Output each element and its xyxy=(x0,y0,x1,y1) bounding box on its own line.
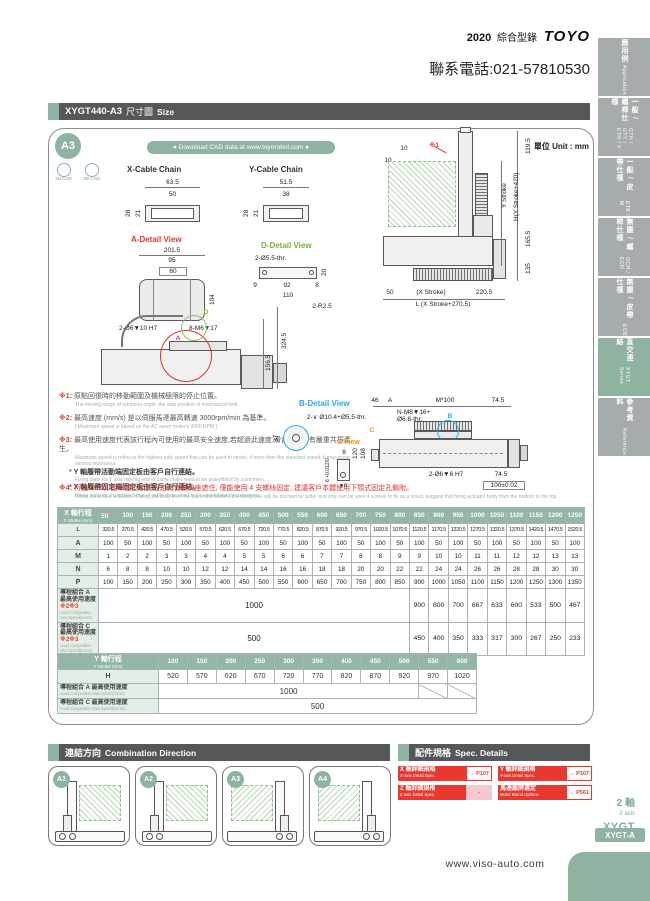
table-cell: 900 xyxy=(410,576,429,589)
table-cell: 670.5 xyxy=(235,524,254,537)
motor-dot xyxy=(59,833,66,840)
table-cell: 50 xyxy=(390,537,409,550)
front-x-belt xyxy=(413,268,493,281)
dim-x-46: 46 xyxy=(367,397,383,404)
table-cell: 820 xyxy=(332,670,361,684)
speed-cell: 233 xyxy=(565,622,585,656)
d-detail-title: D-Detail View xyxy=(261,241,312,250)
table-cell: 920.5 xyxy=(332,524,351,537)
note-3-no: ※3: xyxy=(59,437,72,444)
y-stroke-header: 200 xyxy=(216,654,245,670)
table-cell: 2 xyxy=(137,550,156,563)
dim-d-92: 92 xyxy=(265,282,309,289)
sidebar-tab-application[interactable]: 應用例Application xyxy=(598,38,650,96)
b-detail-hole xyxy=(292,434,300,442)
speed-cell: 900 xyxy=(410,589,429,623)
table-cell: 1220.5 xyxy=(448,524,467,537)
table-cell: 770 xyxy=(303,670,332,684)
motor-dot xyxy=(276,833,283,840)
table-cell: 820.5 xyxy=(293,524,312,537)
dim-d-8: 8 xyxy=(311,282,323,289)
table-cell: 30 xyxy=(565,563,585,576)
speed-row-label: 導程組合 A 最高使用速度Lead Composition Max.Speed(… xyxy=(58,684,159,699)
table-cell: 100 xyxy=(99,576,118,589)
catalog-edition: 2020 綜合型錄 TOYO xyxy=(330,28,590,45)
b-marker-label: B xyxy=(445,413,455,420)
spec-title-bar: 配件規格 Spec. Details xyxy=(398,744,590,761)
tab-label-zh: 一般 / 螺桿仕樣 xyxy=(609,98,639,126)
table-cell: 1320.5 xyxy=(487,524,506,537)
d-detail-hole-right xyxy=(309,270,314,275)
title-en: Size xyxy=(157,107,174,117)
x-stroke-header: 1250 xyxy=(565,508,585,524)
y-cable-chain-title: Y-Cable Chain xyxy=(249,165,303,174)
table-cell: 1200 xyxy=(507,576,526,589)
b-detail-title: B-Detail View xyxy=(299,399,350,408)
dim-front-165: 165.5 xyxy=(525,223,532,255)
table-cell: 520.5 xyxy=(176,524,195,537)
note-4-en: When the stroke is 50mm, if fixing the b… xyxy=(75,494,584,500)
table-cell: 26 xyxy=(468,563,487,576)
table-cell: 800 xyxy=(371,576,390,589)
x-stroke-header: 200 xyxy=(157,508,176,524)
tab-label-en: Application xyxy=(621,65,627,95)
table-cell: 470.5 xyxy=(157,524,176,537)
title-zh: 尺寸圖 xyxy=(126,105,153,118)
table-cell: 8 xyxy=(371,550,390,563)
dim-line xyxy=(277,307,278,389)
table-cell: 50 xyxy=(351,537,370,550)
d-detail-marker-circle xyxy=(181,315,207,341)
table-cell: 12 xyxy=(526,550,545,563)
table-cell: 620.5 xyxy=(215,524,234,537)
y-stroke-header: 400 xyxy=(332,654,361,670)
table-cell: 10 xyxy=(176,563,195,576)
combination-box-a2: A2 xyxy=(135,766,217,846)
catalog-year: 2020 xyxy=(467,32,491,44)
axes-zh: 2 軸 xyxy=(617,798,635,809)
x-stroke-header: 100 xyxy=(118,508,137,524)
note-1-no: ※1: xyxy=(59,393,72,400)
table-cell: 350 xyxy=(196,576,215,589)
table-cell: 50 xyxy=(429,537,448,550)
x-stroke-header: 550 xyxy=(293,508,312,524)
d-marker-label: D xyxy=(201,309,211,316)
speed-cell: 667 xyxy=(468,589,487,623)
dim-front-10a: 10 xyxy=(397,145,411,152)
combination-box-a4: A4 xyxy=(309,766,391,846)
cad-3d-icon[interactable] xyxy=(85,163,99,177)
x-chain-section-inner xyxy=(151,208,194,219)
table-cell: 9 xyxy=(410,550,429,563)
side-motor xyxy=(273,363,287,383)
table-cell: 50 xyxy=(312,537,331,550)
spec-item-1[interactable]: X 軸詳細規格X-axis Detail Spec.→ P107 xyxy=(398,766,492,781)
table-cell: 100 xyxy=(371,537,390,550)
combination-title-en: Combination Direction xyxy=(105,748,196,758)
dim-d-110: 110 xyxy=(261,292,315,299)
dim-ychain-inner-h: 21 xyxy=(253,205,260,222)
dim-front-xstroke: (X Stroke) xyxy=(401,289,461,296)
download-cad-link[interactable]: ● Download CAD data at www.toyorobot.com… xyxy=(147,141,335,154)
table-cell: 50 xyxy=(273,537,292,550)
x-stroke-header: 350 xyxy=(215,508,234,524)
dim-a-w2: 95 xyxy=(151,257,193,264)
table-cell: 10 xyxy=(429,550,448,563)
axes-en: 2 axis xyxy=(540,811,635,818)
table-cell: 8 xyxy=(351,550,370,563)
table-cell: 100 xyxy=(293,537,312,550)
x-stroke-header: 1200 xyxy=(546,508,565,524)
motor-dot xyxy=(373,833,380,840)
table-cell: 870 xyxy=(361,670,390,684)
table-cell: 100 xyxy=(565,537,585,550)
spec-title-en: Spec. Details xyxy=(455,748,508,758)
spec-item-page-ref[interactable]: → P107 xyxy=(466,766,492,781)
dim-x-nm8a: N-M8▼16+ xyxy=(397,409,439,416)
x-rail-centerline xyxy=(383,453,503,454)
table-cell: 520 xyxy=(159,670,188,684)
table-cell: 4 xyxy=(196,550,215,563)
page-corner-block xyxy=(568,852,650,901)
tab-label-zh: 一般 / 皮帶仕樣 xyxy=(614,158,634,199)
footer-url[interactable]: www.viso-auto.com xyxy=(420,858,570,870)
dim-x-a: A xyxy=(385,397,395,404)
speed-span-cell: 1000 xyxy=(159,684,419,699)
table-cell: 570 xyxy=(187,670,216,684)
table-cell: 5 xyxy=(235,550,254,563)
table-cell: 8 xyxy=(137,563,156,576)
dim-ychain-outer-h: 28 xyxy=(243,203,250,223)
table-cell: 3 xyxy=(176,550,195,563)
table-cell: 16 xyxy=(273,563,292,576)
table-cell: 13 xyxy=(565,550,585,563)
table-cell: 26 xyxy=(487,563,506,576)
dim-x-m100: M*100 xyxy=(427,397,463,404)
x-stroke-header: 250 xyxy=(176,508,195,524)
sidebar-nav: 應用例Application一般 / 螺桿仕樣GTH / GTY / ETH /… xyxy=(598,38,650,458)
dim-xchain-outer-w: 63.5 xyxy=(145,179,200,186)
x-rail-lefttab xyxy=(371,449,379,461)
na-cell xyxy=(419,684,448,699)
spec-item-2[interactable]: Y 軸詳細規格Y-axis Detail Spec.→ P107 xyxy=(498,766,592,781)
dim-front-50: 50 xyxy=(382,289,398,296)
speed-cell: 350 xyxy=(448,622,467,656)
front-motion-range-hatch xyxy=(388,161,456,227)
speed-cell: 633 xyxy=(487,589,506,623)
table-cell: 6 xyxy=(273,550,292,563)
table-cell: 100 xyxy=(487,537,506,550)
dim-xchain-inner-h: 21 xyxy=(135,205,142,222)
table-cell: 1420.5 xyxy=(526,524,545,537)
table-cell: 920 xyxy=(390,670,419,684)
combination-badge: A3 xyxy=(227,771,244,788)
dim-line xyxy=(383,299,505,300)
na-cell xyxy=(448,684,477,699)
sidebar-tab-gch-ech[interactable]: 無塵 / 螺桿仕樣GCH / ECH xyxy=(598,218,650,276)
x-cable-chain-title: X-Cable Chain xyxy=(127,165,181,174)
y-stroke-header: 600 xyxy=(448,654,477,670)
dim-front-135: 135 xyxy=(525,257,532,281)
speed-cell: 317 xyxy=(487,622,506,656)
speed-row-label: 導程組合 A最高使用速度 ※2※3Lead Composition Max.Sp… xyxy=(58,589,99,623)
table-cell: 50 xyxy=(157,537,176,550)
a-detail-title: A-Detail View xyxy=(131,235,182,244)
dim-ychain-inner-w: 38 xyxy=(269,191,303,198)
table-cell: 2 xyxy=(118,550,137,563)
x-table-header-label: X 軸行程X Stroke (mm) xyxy=(58,508,99,524)
x-stroke-header: 650 xyxy=(332,508,351,524)
d-detail-hole-left xyxy=(262,270,267,275)
table-cell: 50 xyxy=(235,537,254,550)
dim-d-20: 20 xyxy=(321,263,328,281)
combination-title-zh: 連結方向 xyxy=(65,746,101,759)
dim-xchain-outer-h: 28 xyxy=(125,203,132,223)
y-stroke-header: 250 xyxy=(245,654,274,670)
table-cell: 1 xyxy=(99,550,118,563)
table-cell: 100 xyxy=(526,537,545,550)
table-cell: 6 xyxy=(99,563,118,576)
combination-box-a1: A1 xyxy=(48,766,130,846)
note-4-zh: 行程 50 時, 因本體上顎式固定孔會被滑座遮住, 僅能使用 4 支螺絲固定, … xyxy=(74,485,413,492)
table-cell: 50 xyxy=(507,537,526,550)
table-cell: 50 xyxy=(118,537,137,550)
dim-d-r: 2-R2.5 xyxy=(307,303,337,310)
table-cell: 14 xyxy=(254,563,273,576)
table-cell: 10 xyxy=(157,563,176,576)
y-stroke-header: 450 xyxy=(361,654,390,670)
table-cell: 5 xyxy=(254,550,273,563)
cad-2d-icon[interactable] xyxy=(57,163,71,177)
dim-a-w1: 201.5 xyxy=(139,247,205,254)
x-stroke-header: 400 xyxy=(235,508,254,524)
table-cell: 970 xyxy=(419,670,448,684)
model-name: XYGT440-A3 xyxy=(65,106,122,117)
catalog-page: 2020 綜合型錄 TOYO 聯系電話:021-57810530 XYGT440… xyxy=(0,0,650,901)
table-cell: 100 xyxy=(332,537,351,550)
x-rail-endcap xyxy=(508,439,520,468)
table-cell: 1300 xyxy=(546,576,565,589)
dim-d-9: 9 xyxy=(249,282,261,289)
dim-a-w3: 60 xyxy=(159,267,187,276)
motor-dot xyxy=(156,833,163,840)
sidebar-tab-gth-gty-eth-y[interactable]: 一般 / 螺桿仕樣GTH / GTY / ETH / Y xyxy=(598,98,650,156)
table-cell: 650 xyxy=(312,576,331,589)
table-cell: 1020 xyxy=(448,670,477,684)
table-cell: 1250 xyxy=(526,576,545,589)
dimension-panel: A3 2D CAD 3D CAD ● Download CAD data at … xyxy=(48,128,594,725)
table-cell: 550 xyxy=(273,576,292,589)
tab-label-en: GCH / ECH xyxy=(618,257,630,276)
tab-label-zh: 參考資料 xyxy=(614,398,634,426)
table-cell: 450 xyxy=(235,576,254,589)
x-stroke-header: 300 xyxy=(196,508,215,524)
table-cell: 28 xyxy=(526,563,545,576)
row-label: P xyxy=(58,576,99,589)
table-cell: 1070.5 xyxy=(390,524,409,537)
table-cell: 200 xyxy=(137,576,156,589)
table-cell: 620 xyxy=(216,670,245,684)
y-chain-section-inner xyxy=(269,208,303,219)
speed-cell: 250 xyxy=(546,622,565,656)
table-cell: 18 xyxy=(312,563,331,576)
catalog-name: 綜合型錄 xyxy=(497,33,537,44)
x-stroke-header: 50※4 xyxy=(99,508,118,524)
spec-item-label: Y 軸詳細規格Y-axis Detail Spec. xyxy=(498,766,566,781)
table-cell: 100 xyxy=(448,537,467,550)
x-stroke-header: 150 xyxy=(137,508,156,524)
motor-dot xyxy=(69,833,76,840)
note-3-sub1-en: Fixing plate for Y axis moving end of ca… xyxy=(75,477,359,483)
note-2-zh: 最高速度 (mm/s) 是以伺服馬達最高轉速 3000rpm/min 為基準。 xyxy=(74,415,270,422)
speed-row-label: 導程組合 C 最高使用速度Lead Composition Max.Speed(… xyxy=(58,699,159,714)
table-cell: 370.5 xyxy=(118,524,137,537)
table-cell: 100 xyxy=(215,537,234,550)
table-cell: 1520.5 xyxy=(565,524,585,537)
table-cell: 12 xyxy=(507,550,526,563)
speed-span-cell: 1000 xyxy=(99,589,410,623)
y-table-header-label: Y 軸行程Y Stroke (mm) xyxy=(58,654,159,670)
x-stroke-header: 750 xyxy=(371,508,390,524)
motor-dot xyxy=(286,833,293,840)
dim-b-hole: 2-∨ Ø10.4+Ø5.5-thr. xyxy=(307,413,397,421)
speed-span-cell: 500 xyxy=(159,699,477,714)
spec-item-page-ref[interactable]: → P107 xyxy=(566,766,592,781)
spec-item-label: Z 軸詳細規格Z-axis Detail Spec. xyxy=(398,785,466,800)
motion-range-hatch xyxy=(318,785,360,821)
dim-c-tol: 6 +0.012/0 xyxy=(325,455,331,485)
table-cell: 20 xyxy=(371,563,390,576)
sidebar-tab-xygt-series[interactable]: 直交連結XYGT Series xyxy=(598,338,650,396)
combination-badge: A2 xyxy=(140,771,157,788)
front-y-top-cap xyxy=(460,127,471,133)
x-stroke-header: 1000 xyxy=(468,508,487,524)
dim-front-119: 119.5 xyxy=(525,131,532,161)
tab-label-zh: 無塵 / 螺桿仕樣 xyxy=(614,218,634,255)
brand-logo: TOYO xyxy=(544,28,590,45)
asterisk: * xyxy=(69,469,72,476)
sidebar-tab-ecb[interactable]: 無塵 / 皮帶仕樣ECB xyxy=(598,278,650,336)
motor-dot xyxy=(146,833,153,840)
table-cell: 400 xyxy=(215,576,234,589)
speed-cell: 333 xyxy=(468,622,487,656)
spec-item-3[interactable]: Z 軸詳細規格Z-axis Detail Spec.- xyxy=(398,785,492,800)
dim-ychain-outer-w: 51.5 xyxy=(263,179,309,186)
speed-cell: 467 xyxy=(565,589,585,623)
table-cell: 600 xyxy=(293,576,312,589)
speed-cell: 600 xyxy=(507,589,526,623)
note-4-no: ※4: xyxy=(59,485,72,492)
cad-3d-label: 3D CAD xyxy=(79,176,104,181)
table-cell: 13 xyxy=(546,550,565,563)
speed-cell: 400 xyxy=(429,622,448,656)
contact-phone: 聯系電話:021-57810530 xyxy=(280,58,590,79)
table-cell: 420.5 xyxy=(137,524,156,537)
y-stroke-header: 500 xyxy=(390,654,419,670)
motion-range-hatch xyxy=(166,785,208,821)
sidebar-tab-reference[interactable]: 參考資料Reference xyxy=(598,398,650,456)
tab-label-en: XYGT Series xyxy=(618,367,630,396)
x-stroke-header: 850 xyxy=(410,508,429,524)
table-cell: 1120.5 xyxy=(410,524,429,537)
title-accent-square xyxy=(398,744,409,761)
table-cell: 320.5 xyxy=(99,524,118,537)
speed-span-cell: 500 xyxy=(99,622,410,656)
dim-front-l: L (X Stroke+270.5) xyxy=(393,301,493,308)
x-stroke-header: 700 xyxy=(351,508,370,524)
table-cell: 500 xyxy=(254,576,273,589)
a-marker-label: A xyxy=(173,335,183,342)
table-cell: 250 xyxy=(157,576,176,589)
series-tab[interactable]: XYGT-A xyxy=(595,828,645,842)
sidebar-tab-etb-m[interactable]: 一般 / 皮帶仕樣ETB / M xyxy=(598,158,650,216)
table-cell: 100 xyxy=(137,537,156,550)
table-cell: 16 xyxy=(293,563,312,576)
x-stroke-header: 950 xyxy=(448,508,467,524)
dim-c-depth: ▼6 xyxy=(333,483,353,489)
dim-line xyxy=(263,319,264,389)
table-cell: 24 xyxy=(429,563,448,576)
table-cell: 50 xyxy=(468,537,487,550)
dim-x-120: 120 xyxy=(352,439,359,469)
note-2-no: ※2: xyxy=(59,415,72,422)
tab-label-en: ETB / M xyxy=(618,201,630,216)
front-x-rail xyxy=(383,236,493,266)
dim-front-h: H(Y Stroke+420) xyxy=(513,155,520,239)
dim-c-8: 8 xyxy=(337,449,351,456)
table-cell: 850 xyxy=(390,576,409,589)
row-label: M xyxy=(58,550,99,563)
dim-x-100: 100±0.02 xyxy=(483,481,525,490)
table-cell: 1170.5 xyxy=(429,524,448,537)
table-cell: 12 xyxy=(196,563,215,576)
table-cell: 50 xyxy=(546,537,565,550)
motion-range-hatch xyxy=(231,785,273,821)
spec-item-page-ref[interactable]: - xyxy=(466,785,492,800)
front-x-endcap xyxy=(493,239,506,279)
speed-cell: 300 xyxy=(507,622,526,656)
combination-box-a3: A3 xyxy=(222,766,304,846)
table-cell: 720.5 xyxy=(254,524,273,537)
table-cell: 14 xyxy=(235,563,254,576)
x-stroke-header: 800 xyxy=(390,508,409,524)
row-label: N xyxy=(58,563,99,576)
table-cell: 570.5 xyxy=(196,524,215,537)
x-stroke-header: 1150 xyxy=(526,508,545,524)
table-cell: 1000 xyxy=(429,576,448,589)
speed-cell: 500 xyxy=(546,589,565,623)
unit-label: 單位 Unit : mm xyxy=(511,141,589,152)
motor-dot xyxy=(363,833,370,840)
speed-row-label: 導程組合 C最高使用速度 ※2※3Lead Composition Max.Sp… xyxy=(58,622,99,656)
table-cell: 28 xyxy=(507,563,526,576)
table-cell: 100 xyxy=(254,537,273,550)
table-cell: 1100 xyxy=(468,576,487,589)
cad-2d-label: 2D CAD xyxy=(51,176,76,181)
table-cell: 10 xyxy=(448,550,467,563)
table-cell: 100 xyxy=(176,537,195,550)
combination-title-bar: 連結方向 Combination Direction xyxy=(48,744,390,761)
dim-front-ystroke: Y Stroke xyxy=(501,165,508,227)
dim-line xyxy=(145,187,200,188)
dim-line xyxy=(373,406,511,407)
dim-line xyxy=(263,187,309,188)
table-cell: 11 xyxy=(487,550,506,563)
table-cell: 670 xyxy=(245,670,274,684)
dim-xchain-inner-w: 50 xyxy=(151,191,194,198)
c-view-hole xyxy=(340,472,346,478)
table-cell: 100 xyxy=(410,537,429,550)
